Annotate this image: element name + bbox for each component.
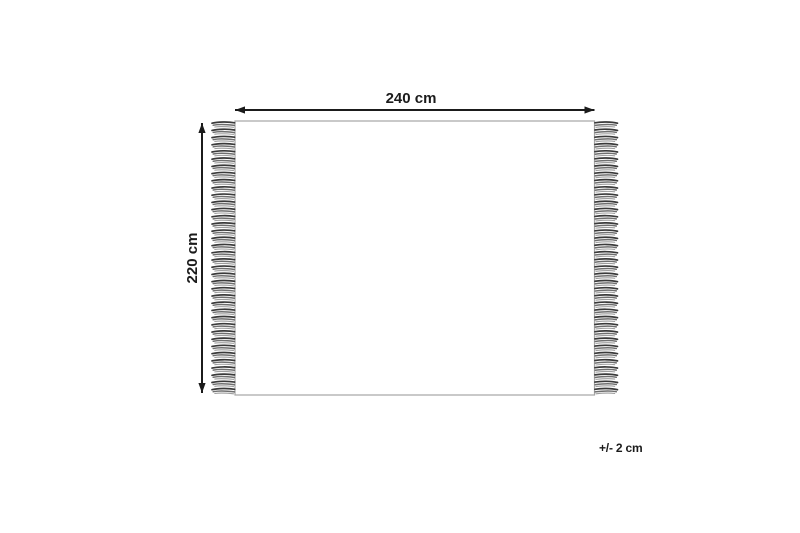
fringe-tassel — [595, 122, 618, 127]
height-dimension: 220 cm — [184, 123, 202, 393]
fringe-tassel — [595, 295, 618, 300]
fringe-tassel — [595, 244, 618, 249]
fringe-tassel — [595, 172, 618, 177]
fringe-tassel — [595, 273, 618, 278]
width-dimension: 240 cm — [235, 90, 595, 110]
fringe-tassel — [595, 187, 618, 192]
fringe-tassel — [595, 280, 618, 285]
fringe-tassel — [212, 129, 235, 134]
fringe-tassel — [212, 295, 235, 300]
fringe-tassel — [212, 136, 235, 141]
fringe-tassel — [212, 216, 235, 221]
fringe-tassel — [595, 237, 618, 242]
height-dimension-label: 220 cm — [184, 233, 201, 284]
width-dimension-label: 240 cm — [386, 90, 437, 107]
fringe-tassel — [212, 237, 235, 242]
fringe-tassel — [212, 144, 235, 149]
fringe-tassel — [212, 158, 235, 163]
fringe-tassel — [595, 129, 618, 134]
fringe-tassel — [212, 201, 235, 206]
fringe-tassel — [212, 360, 235, 365]
fringe-tassel — [212, 165, 235, 170]
fringe-tassel — [595, 230, 618, 235]
fringe-tassel — [595, 259, 618, 264]
fringe-tassel — [212, 374, 235, 379]
fringe-tassel — [212, 266, 235, 271]
fringe-tassel — [595, 144, 618, 149]
fringe-tassel — [595, 324, 618, 329]
fringe-tassel — [595, 208, 618, 213]
fringe-tassel — [212, 302, 235, 307]
fringe-tassel — [595, 216, 618, 221]
fringe-tassel — [212, 223, 235, 228]
fringe-tassel — [212, 280, 235, 285]
fringe-tassel — [595, 302, 618, 307]
fringe-tassel — [595, 374, 618, 379]
fringe-tassel — [212, 208, 235, 213]
fringe-tassel — [212, 273, 235, 278]
fringe-tassel — [212, 151, 235, 156]
fringe-tassel — [595, 338, 618, 343]
fringe-tassel — [595, 180, 618, 185]
fringe-tassel — [212, 309, 235, 314]
fringe-tassel — [212, 172, 235, 177]
fringe-tassel — [212, 180, 235, 185]
fringe-tassel — [595, 345, 618, 350]
rug-outline — [235, 121, 595, 395]
fringe-tassel — [212, 187, 235, 192]
fringe-tassel — [212, 194, 235, 199]
fringe-tassel — [595, 158, 618, 163]
rug-dimension-diagram: 240 cm 220 cm +/- 2 cm — [0, 0, 800, 533]
fringe-tassel — [595, 309, 618, 314]
fringe-tassel — [595, 367, 618, 372]
dimension-diagram-canvas: 240 cm 220 cm +/- 2 cm — [0, 0, 800, 533]
fringe-tassel — [212, 389, 235, 394]
fringe-tassel — [595, 353, 618, 358]
fringe-tassel — [212, 230, 235, 235]
fringe-tassel — [595, 223, 618, 228]
fringe-tassel — [595, 252, 618, 257]
fringe-tassel — [212, 122, 235, 127]
fringe-tassel — [212, 338, 235, 343]
fringe-tassel — [595, 389, 618, 394]
right-fringe — [595, 122, 618, 394]
fringe-tassel — [595, 360, 618, 365]
fringe-tassel — [595, 165, 618, 170]
fringe-tassel — [212, 353, 235, 358]
fringe-tassel — [212, 331, 235, 336]
fringe-tassel — [212, 288, 235, 293]
fringe-tassel — [212, 324, 235, 329]
fringe-tassel — [212, 252, 235, 257]
fringe-tassel — [212, 381, 235, 386]
fringe-tassel — [595, 331, 618, 336]
tolerance-label: +/- 2 cm — [599, 441, 642, 455]
fringe-tassel — [595, 136, 618, 141]
fringe-tassel — [595, 266, 618, 271]
fringe-tassel — [212, 345, 235, 350]
fringe-tassel — [595, 151, 618, 156]
fringe-tassel — [595, 381, 618, 386]
fringe-tassel — [595, 201, 618, 206]
fringe-tassel — [212, 367, 235, 372]
fringe-tassel — [595, 288, 618, 293]
left-fringe — [212, 122, 235, 394]
fringe-tassel — [595, 194, 618, 199]
fringe-tassel — [212, 244, 235, 249]
fringe-tassel — [212, 259, 235, 264]
fringe-tassel — [212, 316, 235, 321]
fringe-tassel — [595, 316, 618, 321]
